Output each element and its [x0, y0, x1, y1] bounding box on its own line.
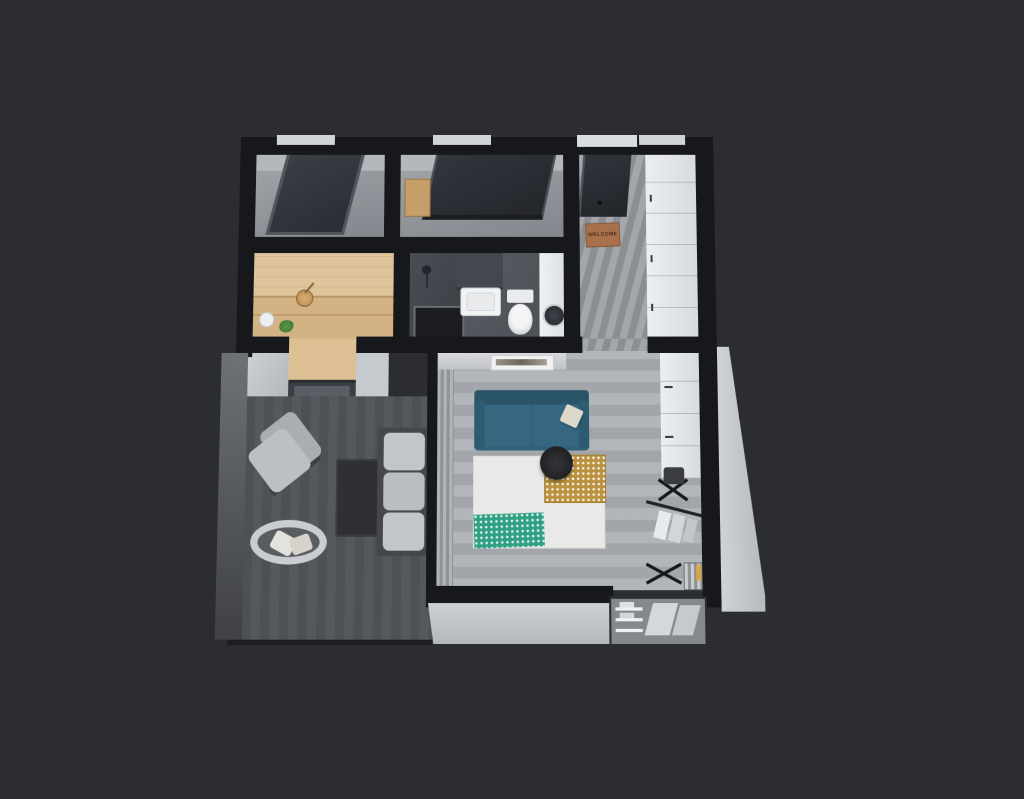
wall-living-terrace-glass — [426, 351, 438, 607]
toilet-tank — [507, 290, 533, 303]
closet-shelf — [615, 607, 642, 610]
drying-rack — [644, 560, 686, 588]
wall-south-living — [426, 586, 613, 603]
cabinet-handle — [665, 436, 673, 438]
cabinet-handle — [664, 386, 672, 388]
shower-tray — [413, 306, 464, 339]
floorplan-3d-render: WELCOME — [212, 135, 798, 658]
render-canvas: WELCOME — [0, 0, 1024, 799]
wall-closet-divider — [384, 137, 401, 241]
closet-shelf — [616, 629, 643, 632]
sauna-bench-step — [253, 314, 393, 316]
door-header — [433, 135, 491, 145]
office-chair-seat — [663, 467, 684, 484]
door-stopper-dot — [598, 201, 602, 205]
papasan-pillow — [288, 533, 313, 556]
green-patterned-throw — [473, 512, 544, 548]
door-header — [639, 135, 685, 145]
sofa-seat-cushion — [484, 405, 530, 447]
cabinet-handle — [651, 255, 653, 262]
entrance-door-header — [577, 135, 637, 147]
round-coffee-table — [540, 446, 573, 480]
sink-basin — [466, 293, 494, 311]
wall-art-frame — [491, 355, 554, 370]
wall-mid-horizontal — [238, 237, 580, 253]
wardrobe-wood-shelf — [404, 179, 430, 217]
yellow-towel — [696, 565, 701, 581]
washing-machine-door — [543, 304, 566, 328]
cabinet-handle — [650, 195, 652, 202]
folded-clothes — [620, 613, 635, 618]
welcome-doormat-text: WELCOME — [588, 232, 617, 238]
vanity-backsplash — [456, 253, 503, 290]
curtains — [436, 369, 454, 585]
closet-recess — [609, 597, 708, 647]
wall-sauna-bathroom — [393, 253, 410, 343]
vestibule-wall-right — [356, 353, 389, 398]
cabinet-handle — [651, 304, 653, 311]
hanging-garment — [683, 518, 698, 543]
outdoor-sofa-cushion — [384, 433, 425, 471]
outdoor-sofa — [376, 428, 431, 556]
wall-south-mid-left — [236, 337, 289, 353]
outdoor-sofa-cushion — [383, 513, 425, 551]
closet-shelf — [615, 618, 642, 621]
outdoor-sofa-cushion — [383, 472, 425, 510]
wall-art-painting — [496, 359, 547, 365]
clothes-rack — [645, 499, 708, 546]
sofa-backrest — [474, 390, 589, 405]
folded-clothes — [620, 602, 635, 607]
outer-wall-face-east — [717, 347, 766, 612]
desk-cabinets — [660, 347, 701, 478]
toilet-bowl — [508, 304, 532, 335]
wall-south-mid-center — [356, 337, 582, 353]
papasan-chair — [250, 520, 327, 565]
sofa-armrest-right — [579, 401, 590, 449]
shower-stem — [426, 273, 428, 287]
wall-south-mid-corner — [647, 337, 717, 353]
sofa-armrest-left — [474, 401, 484, 449]
welcome-doormat: WELCOME — [585, 222, 620, 247]
door-header — [277, 135, 335, 145]
